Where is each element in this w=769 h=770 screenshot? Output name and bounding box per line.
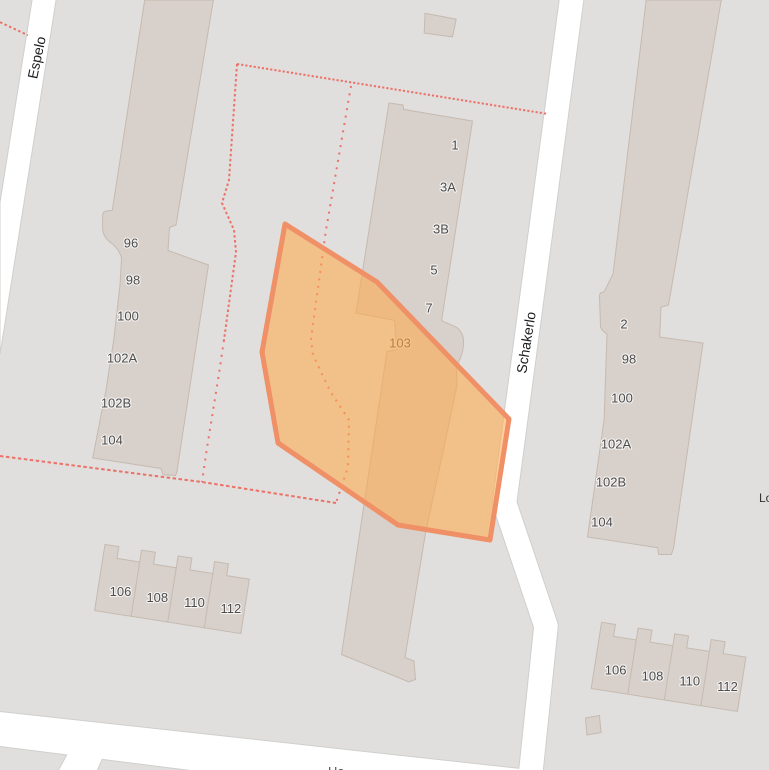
svg-text:5: 5 bbox=[430, 263, 437, 278]
svg-text:102B: 102B bbox=[101, 396, 131, 411]
svg-text:104: 104 bbox=[101, 433, 123, 448]
svg-text:1: 1 bbox=[451, 138, 458, 153]
svg-text:112: 112 bbox=[221, 601, 242, 616]
svg-text:98: 98 bbox=[622, 352, 636, 367]
svg-text:106: 106 bbox=[605, 663, 627, 678]
svg-text:112: 112 bbox=[717, 679, 738, 694]
svg-text:102B: 102B bbox=[596, 475, 626, 490]
svg-text:Lo: Lo bbox=[759, 491, 769, 505]
svg-text:96: 96 bbox=[124, 236, 138, 251]
svg-text:104: 104 bbox=[591, 515, 613, 530]
svg-text:Ha: Ha bbox=[328, 764, 345, 770]
svg-text:2: 2 bbox=[620, 317, 627, 332]
svg-text:100: 100 bbox=[117, 309, 139, 324]
svg-text:100: 100 bbox=[611, 391, 633, 406]
svg-text:98: 98 bbox=[126, 273, 140, 288]
svg-text:3A: 3A bbox=[440, 180, 456, 195]
svg-text:102A: 102A bbox=[107, 351, 138, 366]
svg-text:108: 108 bbox=[146, 590, 168, 605]
svg-text:110: 110 bbox=[184, 595, 205, 610]
svg-text:3B: 3B bbox=[433, 222, 449, 237]
svg-text:7: 7 bbox=[425, 301, 432, 316]
svg-text:110: 110 bbox=[679, 674, 700, 689]
svg-text:106: 106 bbox=[110, 584, 132, 599]
svg-text:102A: 102A bbox=[601, 437, 632, 452]
svg-text:108: 108 bbox=[642, 669, 664, 684]
